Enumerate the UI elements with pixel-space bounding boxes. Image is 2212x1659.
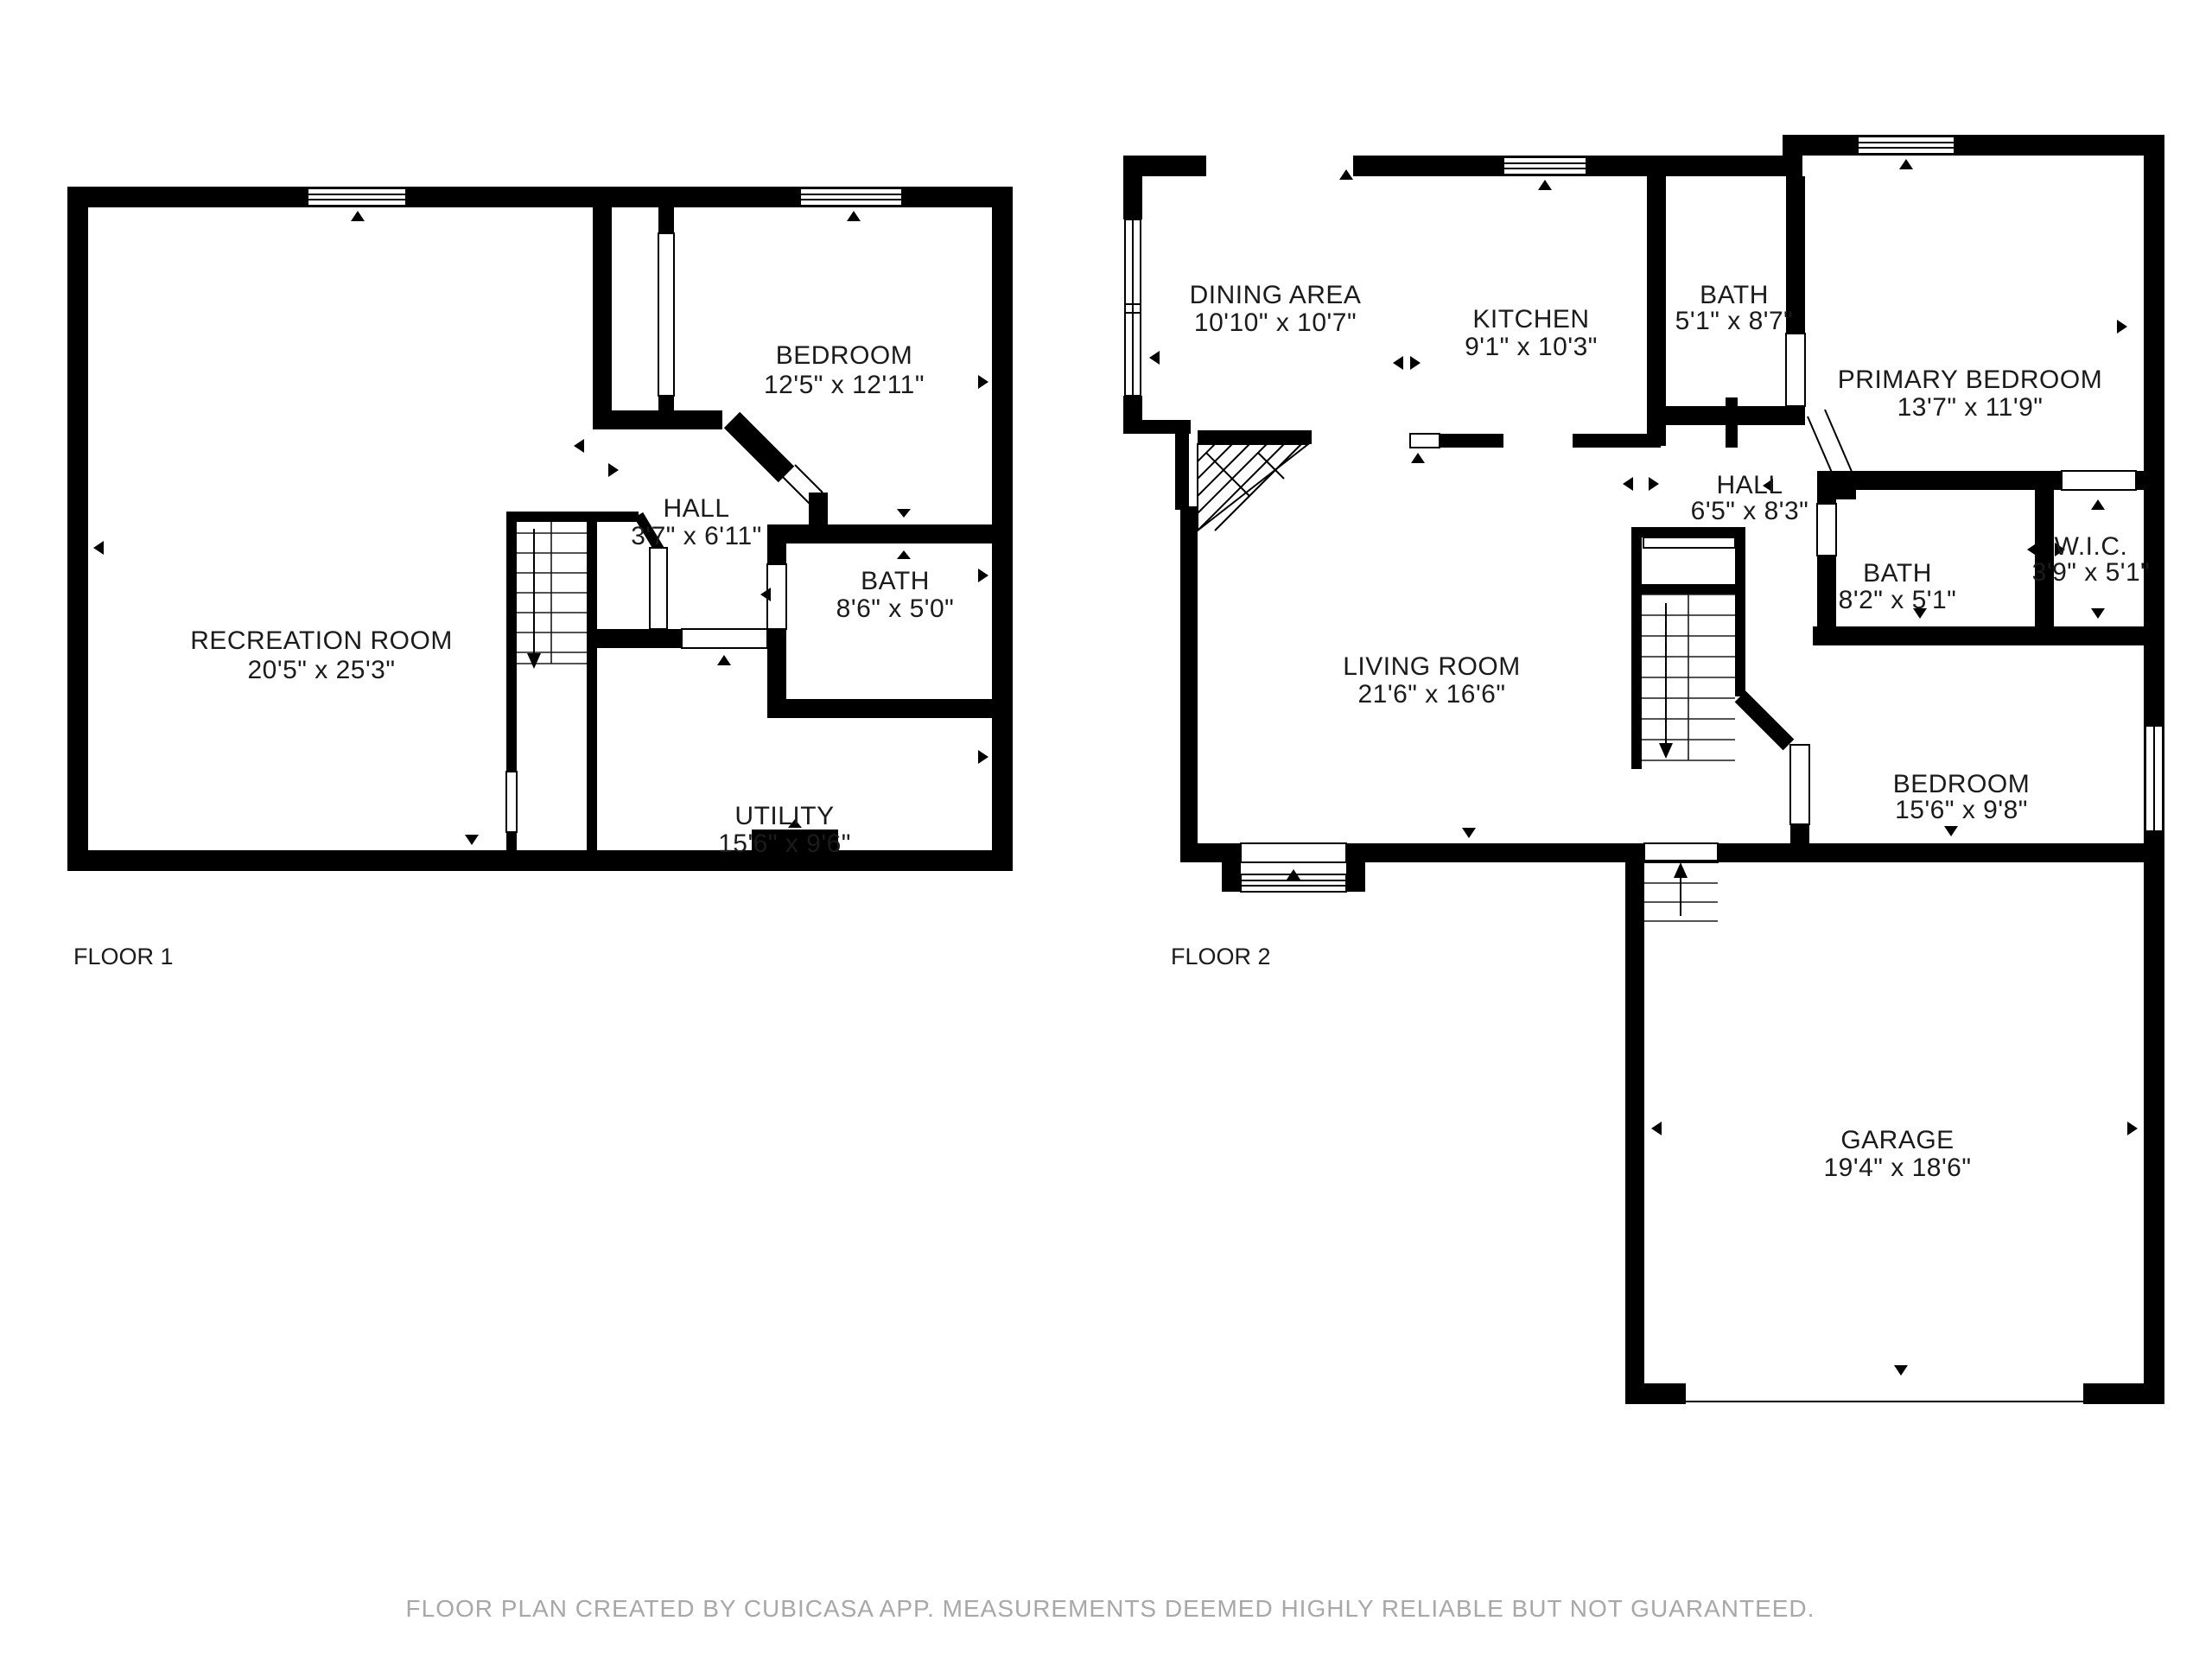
room-label-living-room-dims: 21'6" x 16'6" xyxy=(1357,680,1505,709)
room-label-f1-bedroom-dims: 12'5" x 12'11" xyxy=(764,371,925,400)
disclaimer-caption: FLOOR PLAN CREATED BY CUBICASA APP. MEAS… xyxy=(406,1595,1815,1623)
entry-porch-hatch xyxy=(1198,444,1308,531)
room-label-f2-bedroom-name: BEDROOM xyxy=(1893,770,2031,799)
room-label-f1-hall-name: HALL xyxy=(663,494,729,524)
room-label-f1-bedroom-name: BEDROOM xyxy=(776,341,913,371)
floor1-plan xyxy=(67,187,1013,871)
room-label-living-room-name: LIVING ROOM xyxy=(1343,652,1521,682)
room-label-primary-bedroom-name: PRIMARY BEDROOM xyxy=(1838,365,2102,395)
floor2-stairs xyxy=(1642,594,1735,760)
stairs-down-arrow-icon xyxy=(1659,603,1673,759)
floor1-stairs xyxy=(517,522,587,669)
floor1-label: FLOOR 1 xyxy=(73,944,174,970)
room-label-f1-bath-dims: 8'6" x 5'0" xyxy=(836,594,955,624)
room-label-recreation-name: RECREATION ROOM xyxy=(190,626,453,656)
room-label-dining-name: DINING AREA xyxy=(1190,281,1362,310)
garage-entry-steps xyxy=(1644,862,1718,921)
room-label-f2-bath-upper-name: BATH xyxy=(1700,281,1769,310)
room-label-utility-name: UTILITY xyxy=(734,802,834,831)
room-label-f2-bath-lower-name: BATH xyxy=(1863,559,1932,588)
room-label-primary-bedroom-dims: 13'7" x 11'9" xyxy=(1897,393,2044,423)
room-label-utility-dims: 15'6" x 9'6" xyxy=(718,829,851,859)
room-label-f2-bath-lower-dims: 8'2" x 5'1" xyxy=(1839,586,1957,615)
floorplan-page: RECREATION ROOM 20'5" x 25'3" BEDROOM 12… xyxy=(0,0,2212,1659)
floor2-doors xyxy=(1241,334,2136,1402)
stairs-down-arrow-icon xyxy=(527,529,541,669)
room-label-wic-name: W.I.C. xyxy=(2055,532,2128,562)
room-label-kitchen-name: KITCHEN xyxy=(1472,305,1589,334)
room-label-f2-hall-name: HALL xyxy=(1716,471,1783,500)
floor1-walls xyxy=(67,187,1013,871)
room-label-f2-bedroom-dims: 15'6" x 9'8" xyxy=(1895,796,2028,825)
room-label-dining-dims: 10'10" x 10'7" xyxy=(1194,308,1357,338)
floor2-label: FLOOR 2 xyxy=(1171,944,1271,970)
stairs-up-arrow-icon xyxy=(1674,862,1688,916)
room-label-f1-bath-name: BATH xyxy=(861,567,930,596)
room-label-garage-name: GARAGE xyxy=(1840,1126,1954,1155)
room-label-f1-hall-dims: 3'7" x 6'11" xyxy=(631,522,762,551)
room-label-f2-bath-upper-dims: 5'1" x 8'7" xyxy=(1675,307,1794,336)
room-label-recreation-dims: 20'5" x 25'3" xyxy=(247,656,395,685)
room-label-f2-hall-dims: 6'5" x 8'3" xyxy=(1691,497,1809,526)
room-label-kitchen-dims: 9'1" x 10'3" xyxy=(1465,333,1598,362)
room-label-garage-dims: 19'4" x 18'6" xyxy=(1823,1154,1971,1183)
floorplan-drawing xyxy=(0,0,2212,1659)
room-label-wic-dims: 3'9" x 5'1" xyxy=(2032,558,2151,588)
